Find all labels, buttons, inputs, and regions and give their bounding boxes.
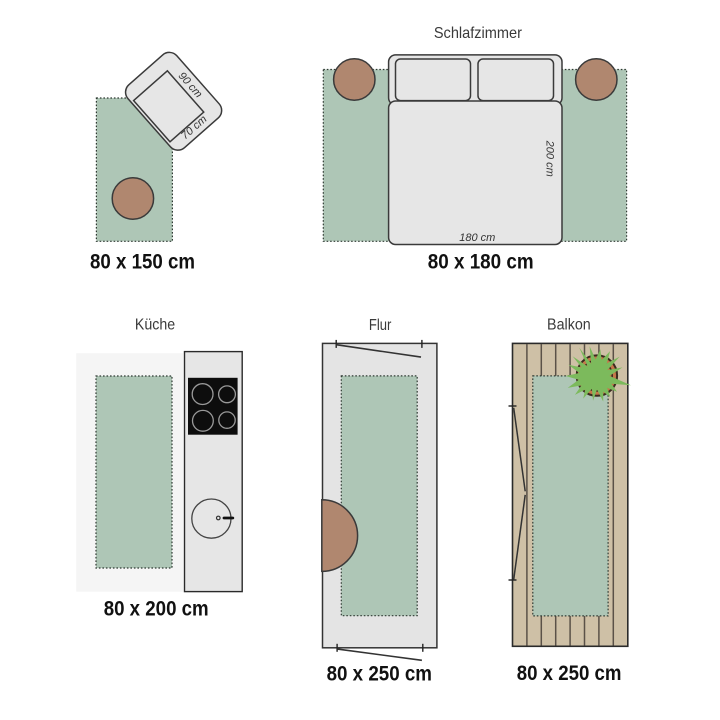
svg-text:Schlafzimmer: Schlafzimmer	[434, 25, 523, 42]
svg-text:Küche: Küche	[135, 317, 175, 334]
svg-text:Flur: Flur	[369, 317, 392, 334]
svg-text:Balkon: Balkon	[547, 316, 591, 333]
svg-text:200 cm: 200 cm	[543, 140, 555, 177]
svg-text:80 x 200 cm: 80 x 200 cm	[104, 598, 209, 621]
svg-text:80 x 180 cm: 80 x 180 cm	[428, 250, 534, 273]
svg-text:180 cm: 180 cm	[459, 232, 495, 244]
svg-text:80 x 250 cm: 80 x 250 cm	[327, 662, 432, 685]
svg-text:80 x 150 cm: 80 x 150 cm	[90, 251, 195, 274]
svg-text:80 x 250 cm: 80 x 250 cm	[517, 662, 622, 685]
